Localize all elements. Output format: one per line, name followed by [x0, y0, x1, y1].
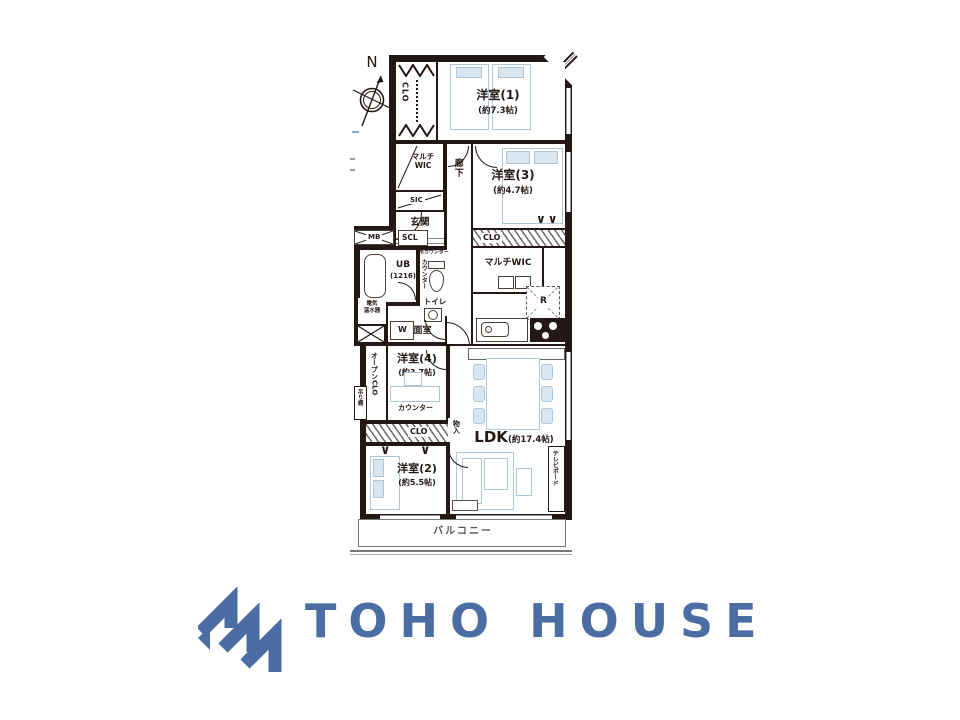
- balcony-label: バルコニー: [408, 526, 518, 538]
- ground-line: [350, 554, 572, 555]
- room-name: 洋室(3): [491, 168, 534, 182]
- dining-chair-icon: [541, 364, 553, 380]
- toilet-label: トイレ: [422, 297, 448, 306]
- monoire-label: 物入: [452, 420, 460, 434]
- dining-chair-icon: [541, 386, 553, 402]
- window-r1-right: [566, 88, 571, 134]
- room-size: (約4.7帖): [493, 186, 533, 196]
- closet-divider-r1: [436, 62, 438, 140]
- washer-label: W: [398, 325, 407, 335]
- burner-icon: [534, 322, 542, 330]
- toilet-tank: [428, 261, 445, 269]
- label-line: 温水器: [364, 308, 381, 314]
- hanger-marks: ∨∨: [536, 212, 560, 226]
- wic-drawer: [498, 276, 514, 289]
- window-r3-right: [566, 152, 571, 212]
- room-name: UB: [396, 260, 410, 270]
- sofa-cushion-icon: [484, 458, 508, 490]
- dining-chair-icon: [473, 364, 485, 380]
- desk-chair-icon: [404, 372, 422, 386]
- sic-label: SIC: [408, 196, 425, 204]
- ground-line: [350, 550, 572, 552]
- pillow-icon: [373, 459, 384, 477]
- compass-north-label: N: [362, 53, 382, 71]
- ub-label: UB (1216): [388, 260, 418, 282]
- tick-mark: [352, 131, 359, 133]
- room-size: (約5.5帖): [398, 478, 435, 487]
- denki-label: 電気 温水器: [359, 301, 385, 315]
- clo-strip-yoshitsu4: [366, 424, 448, 442]
- toho-house-logo: TOHO HOUSE: [180, 572, 780, 682]
- dining-chair-icon: [473, 408, 485, 424]
- tv-board-label: テレビボード: [551, 450, 558, 486]
- room-size: (約7.3帖): [478, 106, 518, 116]
- pillow-icon: [456, 67, 482, 78]
- house-mark-icon: [198, 580, 288, 672]
- tsuridana-label: 吊り棚: [356, 389, 363, 406]
- tick-mark: [350, 158, 355, 160]
- scl-label: SCL: [402, 233, 418, 242]
- dining-table-icon: [486, 358, 540, 430]
- dining-chair-icon: [541, 408, 553, 424]
- burner-icon: [542, 332, 549, 339]
- dining-chair-icon: [473, 386, 485, 402]
- label-line: 電気: [366, 301, 377, 307]
- room-label-ldk: LDK(約17.4帖): [462, 428, 566, 446]
- hanger-mark: ∨: [420, 443, 431, 459]
- room-label-r2: 洋室(2) (約5.5帖): [388, 462, 446, 488]
- clo-label-r1: CLO: [400, 82, 410, 102]
- counter-label-r4: カウンター: [396, 404, 435, 412]
- closet-dotted-line: [416, 80, 418, 122]
- label-line: WIC: [415, 161, 432, 170]
- pillow-icon: [373, 480, 384, 498]
- burner-icon: [549, 322, 557, 330]
- open-clo-label: オープンCLO: [370, 352, 378, 395]
- pillow-icon: [534, 151, 558, 164]
- window-ldk-right: [566, 352, 571, 440]
- hanger-zigzag-icon: [398, 64, 436, 77]
- room-label-r3: 洋室(3) (約4.7帖): [468, 168, 558, 197]
- room-name: 洋室(1): [476, 88, 519, 102]
- fridge-label: R: [538, 296, 549, 307]
- hatch-cross-icon: [358, 326, 384, 342]
- clo-label-r3: CLO: [481, 233, 502, 243]
- desk-counter-icon: [390, 386, 440, 402]
- room-label-r1: 洋室(1) (約7.3帖): [448, 88, 548, 117]
- room-name: 洋室(2): [397, 462, 437, 475]
- bathtub-icon: [364, 254, 386, 298]
- mb-label: MB: [366, 233, 382, 241]
- room-size: (約17.4帖): [508, 435, 554, 445]
- room-size: (1216): [390, 272, 416, 280]
- counter-vertical-label: カウンター: [420, 259, 427, 289]
- label-line: マルチ: [412, 152, 435, 161]
- tick-mark: [350, 169, 355, 171]
- hanger-zigzag-icon: [398, 124, 436, 137]
- pillow-icon: [498, 67, 524, 78]
- multi-wic-left-label: マルチ WIC: [404, 152, 442, 170]
- logo-text: TOHO HOUSE: [305, 594, 769, 648]
- multi-wic-right-label: マルチWIC: [478, 258, 538, 269]
- hanging-counter-label: 吊カウンター: [419, 250, 446, 256]
- vanity-basin-icon: [428, 310, 438, 320]
- side-table-icon: [516, 468, 532, 496]
- faucet-icon: [485, 326, 492, 333]
- pillow-icon: [506, 151, 530, 164]
- small-box: [452, 500, 478, 511]
- room-name: LDK: [474, 428, 508, 446]
- clo-label-r4: CLO: [408, 427, 429, 437]
